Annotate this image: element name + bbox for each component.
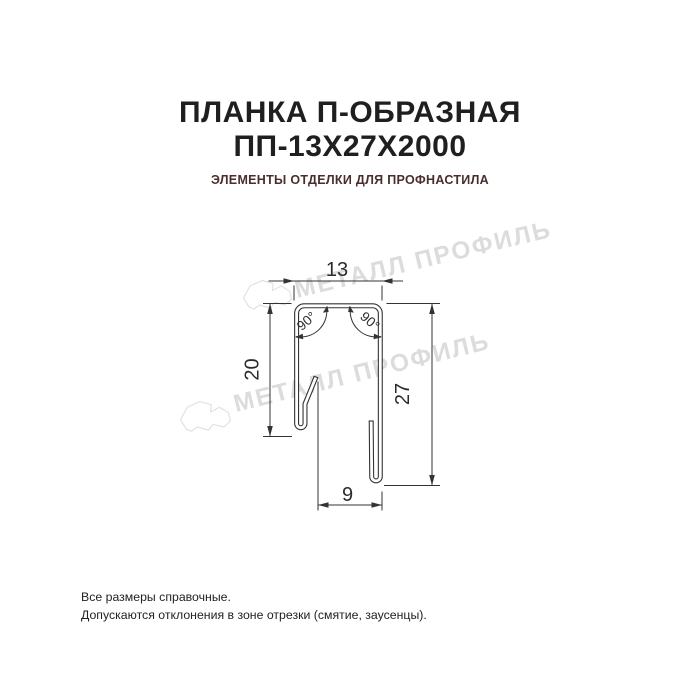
dim-top-width-label: 13: [326, 259, 348, 281]
footer-notes: Все размеры справочные. Допускаются откл…: [81, 588, 427, 624]
watermark-middle: МЕТАЛЛ ПРОФИЛЬ: [181, 328, 493, 431]
watermark-upper: МЕТАЛЛ ПРОФИЛЬ: [244, 216, 555, 309]
dim-bottom-width-label: 9: [342, 484, 353, 506]
dim-left-height-label: 20: [242, 358, 264, 380]
page: { "header": { "title_line1": "ПЛАНКА П-О…: [0, 0, 700, 700]
footer-note-line2: Допускаются отклонения в зоне отрезки (с…: [81, 606, 427, 624]
dim-right-height-label: 27: [392, 383, 414, 405]
dimension-left-height: [263, 304, 292, 437]
watermark-cloud-logo-icon: [181, 402, 231, 432]
watermark-cloud-logo-icon: [244, 281, 292, 310]
footer-note-line1: Все размеры справочные.: [81, 588, 427, 606]
profile-outline: [297, 306, 381, 481]
